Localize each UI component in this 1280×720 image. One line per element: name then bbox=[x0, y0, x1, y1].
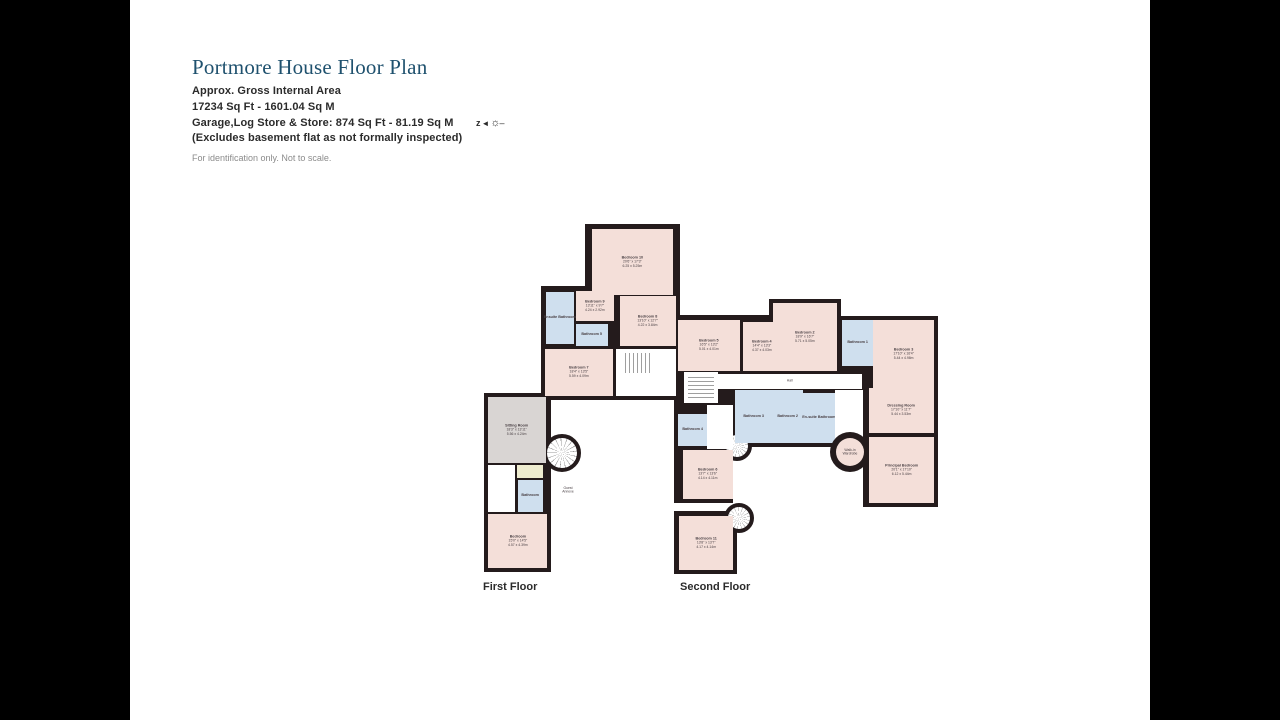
room-bedroom-11: Bedroom 11 13'8" x 13'7" 4.17 x 4.14m bbox=[679, 516, 733, 570]
second-floor-label: Second Floor bbox=[680, 581, 750, 593]
room-bedroom-10: Bedroom 10 20'6" x 17'3" 6.25 x 5.25m bbox=[592, 229, 673, 295]
room-bedroom-7: Bedroom 7 18'4" x 13'5" 5.59 x 4.09m bbox=[545, 349, 613, 396]
room-name: Bathroom 1 bbox=[847, 341, 868, 345]
north-compass-icon: z ◄ ☼ – bbox=[476, 118, 505, 128]
page-title: Portmore House Floor Plan bbox=[192, 55, 427, 80]
room-ensuite-bathroom-main: En-suite Bathroom bbox=[803, 393, 835, 443]
room-dims-metric: 4.14 x 4.11m bbox=[698, 477, 717, 481]
room-name: Bathroom 3 bbox=[743, 414, 764, 418]
area-line-4: (Excludes basement flat as not formally … bbox=[192, 132, 462, 144]
area-line-2: 17234 Sq Ft - 1601.04 Sq M bbox=[192, 101, 335, 113]
room-name: Hall bbox=[787, 379, 793, 383]
room-dims-metric: 5.01 x 4.01m bbox=[699, 348, 719, 352]
room-bathroom-3: Bathroom 3 bbox=[735, 390, 772, 443]
room-dressing-room: Dressing Room 17'10" x 11'7" 5.44 x 3.53… bbox=[869, 388, 934, 433]
room-name: Walk-in Wardrobe bbox=[842, 448, 858, 456]
room-dims-metric: 5.44 x 3.53m bbox=[888, 413, 915, 417]
room-dims-metric: 5.59 x 4.09m bbox=[569, 375, 589, 379]
wing-utility-room bbox=[517, 465, 543, 478]
room-dims-metric: 5.71 x 5.05m bbox=[795, 339, 815, 343]
room-name: Guest Annexe bbox=[558, 486, 578, 493]
floor-plan: Bedroom 10 20'6" x 17'3" 6.25 x 5.25m En… bbox=[470, 212, 948, 594]
room-name: Bathroom 5 bbox=[582, 333, 603, 337]
compass-arrow-icon: ◄ bbox=[482, 119, 490, 128]
room-bedroom-5: Bedroom 5 16'5" x 13'2" 5.01 x 4.01m bbox=[678, 320, 740, 371]
room-dims-metric: 4.57 x 4.39m bbox=[508, 543, 528, 547]
guest-annexe-label: Guest Annexe bbox=[552, 484, 584, 496]
first-floor-label: First Floor bbox=[483, 581, 537, 593]
room-dims-metric: 4.37 x 4.03m bbox=[752, 349, 772, 353]
room-bedroom-3: Bedroom 3 17'10" x 16'4" 5.44 x 4.98m bbox=[873, 320, 934, 389]
compass-dash: – bbox=[500, 118, 505, 128]
staircase bbox=[622, 353, 650, 373]
room-bathroom-4: Bathroom 4 bbox=[678, 414, 707, 446]
spiral-stair-icon bbox=[543, 434, 581, 472]
room-bathroom-2: Bathroom 2 bbox=[772, 390, 803, 443]
walk-in-wardrobe-floor: Walk-in Wardrobe bbox=[836, 438, 864, 466]
room-dims-metric: 4.22 x 3.84m bbox=[638, 323, 659, 327]
hall-corridor: Hall bbox=[718, 374, 862, 389]
room-ensuite-bathroom-first: Ensuite Bathroom bbox=[546, 292, 574, 344]
staircase bbox=[688, 374, 714, 401]
room-principal-bedroom: Principal Bedroom 20'1" x 17'10" 6.12 x … bbox=[869, 437, 934, 503]
room-bathroom-1: Bathroom 1 bbox=[842, 320, 873, 366]
room-sitting-room: Sitting Room 18'3" x 13'11" 5.56 x 4.24m bbox=[488, 397, 546, 463]
room-dims-metric: 6.12 x 5.44m bbox=[885, 472, 918, 476]
area-line-1: Approx. Gross Internal Area bbox=[192, 85, 341, 97]
room-name: Bathroom 2 bbox=[777, 414, 798, 418]
room-name: En-suite Bathroom bbox=[802, 416, 835, 420]
room-dims-metric: 4.24 x 2.92m bbox=[585, 308, 605, 312]
room-dims-metric: 5.44 x 4.98m bbox=[893, 357, 914, 361]
room-name: Bathroom 4 bbox=[682, 428, 703, 432]
room-name: Bathroom bbox=[522, 494, 540, 498]
area-line-3: Garage,Log Store & Store: 874 Sq Ft - 81… bbox=[192, 117, 454, 129]
room-wing-bathroom: Bathroom bbox=[518, 480, 543, 512]
compass-north-letter: z bbox=[476, 118, 481, 128]
disclaimer-text: For identification only. Not to scale. bbox=[192, 153, 331, 163]
room-name: Ensuite Bathroom bbox=[544, 316, 576, 320]
room-bedroom-9: Bedroom 9 13'11" x 9'7" 4.24 x 2.92m bbox=[576, 291, 614, 321]
room-bedroom-8: Bedroom 8 13'10" x 12'7" 4.22 x 3.84m bbox=[620, 296, 676, 346]
corridor bbox=[707, 405, 733, 449]
wing-hallway bbox=[488, 465, 515, 512]
room-dims-metric: 4.17 x 4.14m bbox=[695, 545, 716, 549]
room-dims-metric: 5.56 x 4.24m bbox=[505, 432, 528, 436]
room-dims-metric: 6.25 x 5.25m bbox=[622, 264, 644, 268]
room-bedroom-2: Bedroom 2 18'9" x 16'7" 5.71 x 5.05m bbox=[773, 303, 837, 371]
room-wing-bedroom: Bedroom 15'0" x 14'5" 4.57 x 4.39m bbox=[488, 514, 547, 568]
room-bathroom-5: Bathroom 5 bbox=[576, 324, 608, 346]
page-panel: Portmore House Floor Plan Approx. Gross … bbox=[130, 0, 1150, 720]
room-bedroom-6: Bedroom 6 13'7" x 13'6" 4.14 x 4.11m bbox=[683, 450, 733, 499]
